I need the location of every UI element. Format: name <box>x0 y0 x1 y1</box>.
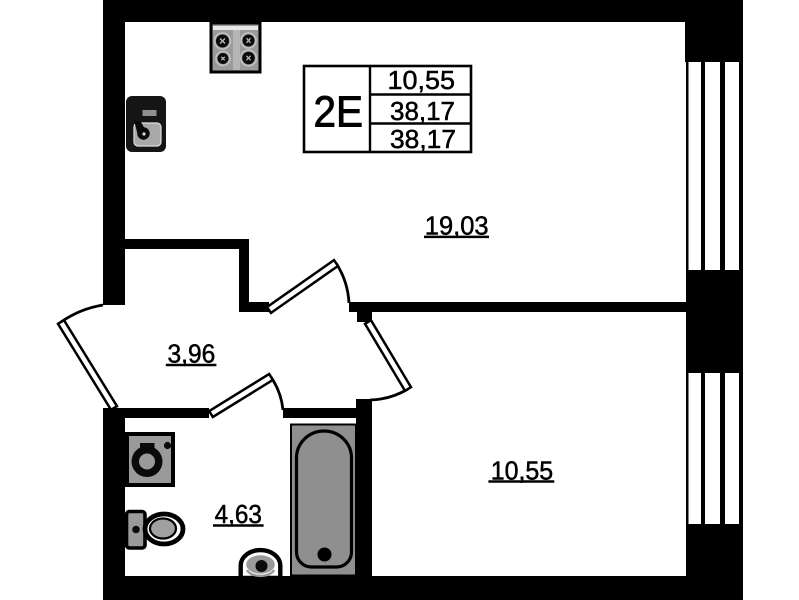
svg-text:38,17: 38,17 <box>390 124 456 154</box>
svg-text:38,17: 38,17 <box>390 96 455 126</box>
svg-text:10,55: 10,55 <box>388 65 456 95</box>
svg-text:2E: 2E <box>314 88 364 136</box>
